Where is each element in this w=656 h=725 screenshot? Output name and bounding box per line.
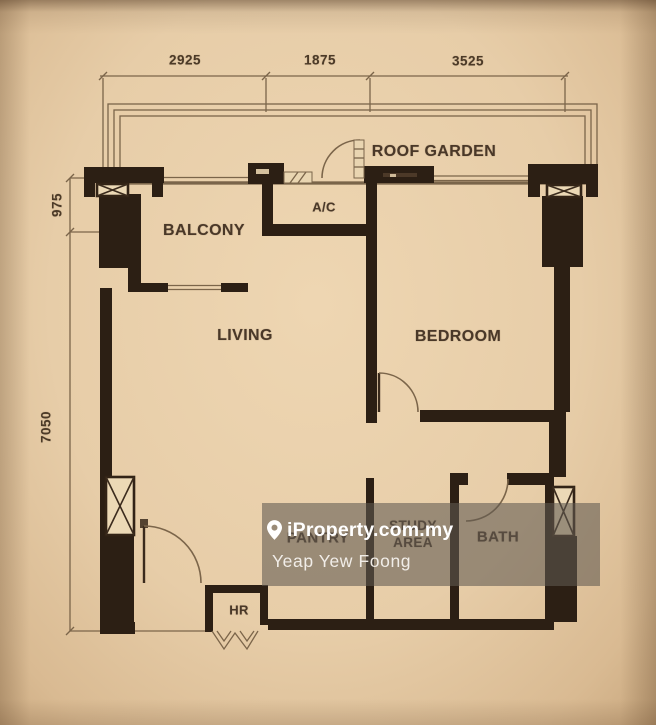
room-label-balcony: BALCONY bbox=[163, 222, 245, 240]
watermark-agent-name: Yeap Yew Foong bbox=[272, 551, 411, 572]
bedroom-door bbox=[379, 373, 418, 412]
room-label-hr: HR bbox=[229, 603, 249, 618]
hr-chevron bbox=[212, 631, 258, 649]
dimension-label-7050: 7050 bbox=[39, 411, 54, 443]
pantry-door bbox=[140, 519, 201, 583]
dimension-label-975: 975 bbox=[50, 193, 65, 217]
watermark-brand-text: iProperty.com.my bbox=[287, 519, 453, 542]
dimension-label-1875: 1875 bbox=[304, 53, 336, 68]
room-label-roof-garden: ROOF GARDEN bbox=[372, 143, 496, 161]
floorplan-drawing: ROOF GARDEN BALCONY A/C LIVING BEDROOM P… bbox=[0, 0, 656, 725]
roof-garden-outline bbox=[108, 104, 597, 184]
dimension-label-2925: 2925 bbox=[169, 53, 201, 68]
watermark-band bbox=[262, 503, 600, 586]
entry-door bbox=[284, 140, 364, 183]
dimension-label-3525: 3525 bbox=[452, 54, 484, 69]
floorplan-photo: ROOF GARDEN BALCONY A/C LIVING BEDROOM P… bbox=[0, 0, 656, 725]
room-label-ac: A/C bbox=[312, 200, 336, 215]
room-label-living: LIVING bbox=[217, 327, 273, 345]
location-pin-icon bbox=[267, 520, 282, 540]
watermark-brand: iProperty.com.my bbox=[267, 519, 453, 541]
room-label-bedroom: BEDROOM bbox=[415, 328, 501, 346]
floorplan-linework bbox=[0, 0, 656, 725]
